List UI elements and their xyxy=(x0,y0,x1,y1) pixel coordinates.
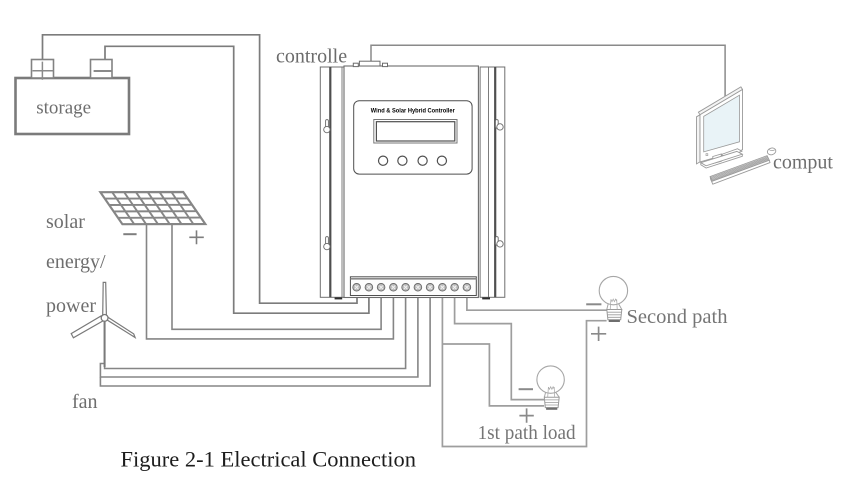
svg-text:controlle: controlle xyxy=(276,46,347,68)
svg-text:1st path load: 1st path load xyxy=(478,422,576,444)
svg-text:power: power xyxy=(46,295,96,317)
svg-text:Second path: Second path xyxy=(627,306,728,328)
svg-text:Figure 2-1 Electrical Connecti: Figure 2-1 Electrical Connection xyxy=(121,447,417,472)
svg-text:Wind & Solar Hybrid Controller: Wind & Solar Hybrid Controller xyxy=(371,108,455,115)
svg-text:comput: comput xyxy=(773,152,833,174)
svg-text:storage: storage xyxy=(36,98,91,119)
svg-text:energy/: energy/ xyxy=(46,251,106,273)
svg-text:solar: solar xyxy=(46,211,85,233)
svg-text:fan: fan xyxy=(72,391,98,413)
